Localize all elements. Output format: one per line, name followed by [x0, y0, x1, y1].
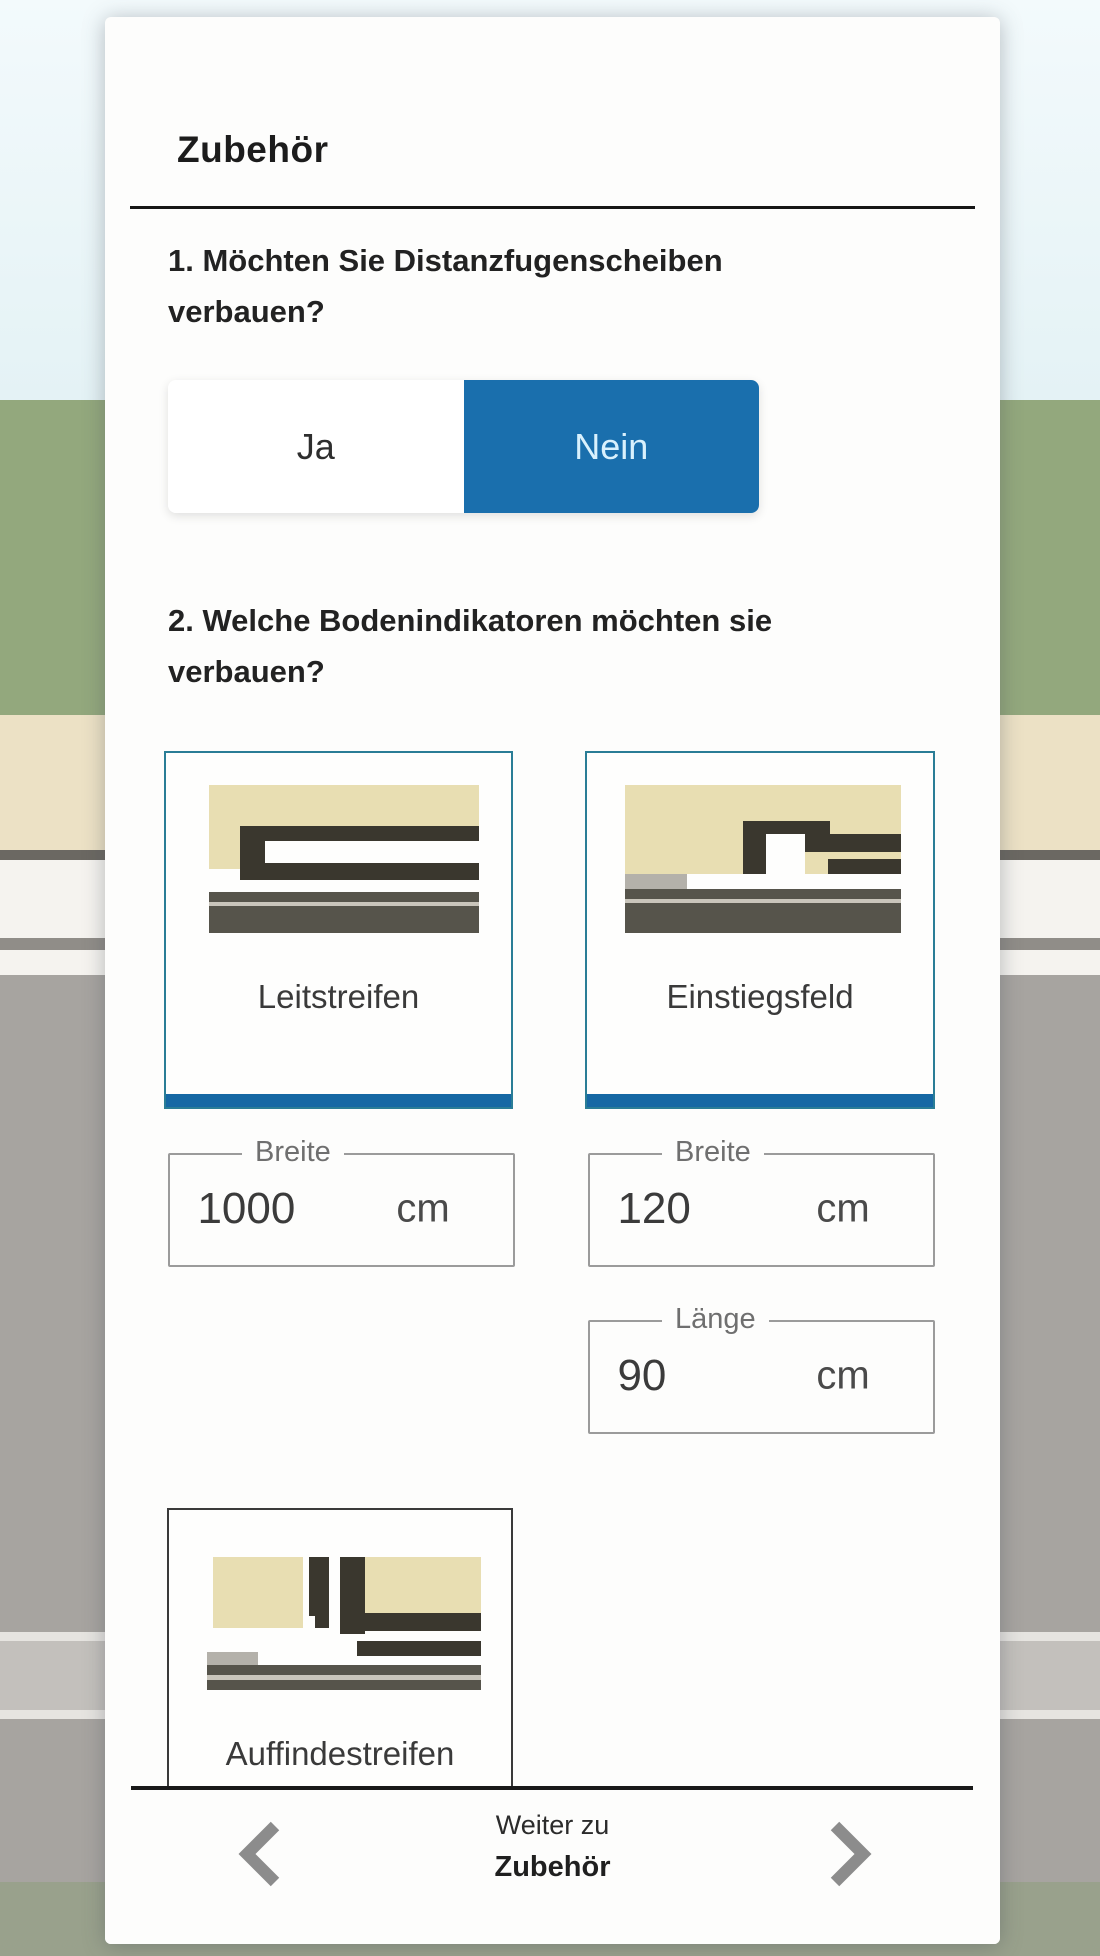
option-ja-button[interactable]: Ja: [168, 380, 464, 513]
bottom-navigation: Weiter zu Zubehör: [105, 1786, 1000, 1944]
card-selected-indicator: [166, 1094, 511, 1107]
question-2-text: 2. Welche Bodenindikatoren möchten sie v…: [168, 595, 848, 697]
screenshot-stage: Zubehör 1. Möchten Sie Distanzfugenschei…: [0, 0, 1100, 1956]
field-label: Länge: [662, 1303, 769, 1336]
distanzfugenscheiben-toggle: Ja Nein: [168, 380, 759, 513]
card-label: Leitstreifen: [166, 978, 511, 1016]
card-einstiegsfeld[interactable]: Einstiegsfeld: [585, 751, 935, 1109]
breite-field-leitstreifen: Breite 1000 cm: [168, 1153, 515, 1267]
unit-label: cm: [816, 1354, 869, 1399]
breite-input[interactable]: 120: [617, 1184, 690, 1234]
breite-field-einstiegsfeld: Breite 120 cm: [588, 1153, 935, 1267]
card-leitstreifen[interactable]: Leitstreifen: [164, 751, 513, 1109]
page-title: Zubehör: [177, 129, 328, 171]
field-label: Breite: [242, 1136, 344, 1169]
question-1-text: 1. Möchten Sie Distanzfugenscheiben verb…: [168, 235, 788, 337]
laenge-field-einstiegsfeld: Länge 90 cm: [588, 1320, 935, 1434]
leitstreifen-profile-illustration: [198, 785, 480, 933]
unit-label: cm: [396, 1187, 449, 1232]
card-label: Auffindestreifen: [169, 1735, 511, 1773]
card-selected-indicator: [587, 1094, 933, 1107]
title-divider: [130, 206, 975, 209]
configurator-panel: Zubehör 1. Möchten Sie Distanzfugenschei…: [105, 17, 1000, 1944]
laenge-input[interactable]: 90: [617, 1351, 666, 1401]
chevron-right-icon: [828, 1820, 872, 1888]
auffindestreifen-profile-illustration: [199, 1542, 481, 1690]
unit-label: cm: [816, 1187, 869, 1232]
option-nein-button[interactable]: Nein: [464, 380, 760, 513]
einstiegsfeld-profile-illustration: [619, 785, 901, 933]
card-label: Einstiegsfeld: [587, 978, 933, 1016]
nav-top-border: [131, 1786, 973, 1790]
next-step-button[interactable]: [828, 1820, 872, 1888]
field-label: Breite: [662, 1136, 764, 1169]
breite-input[interactable]: 1000: [197, 1184, 295, 1234]
